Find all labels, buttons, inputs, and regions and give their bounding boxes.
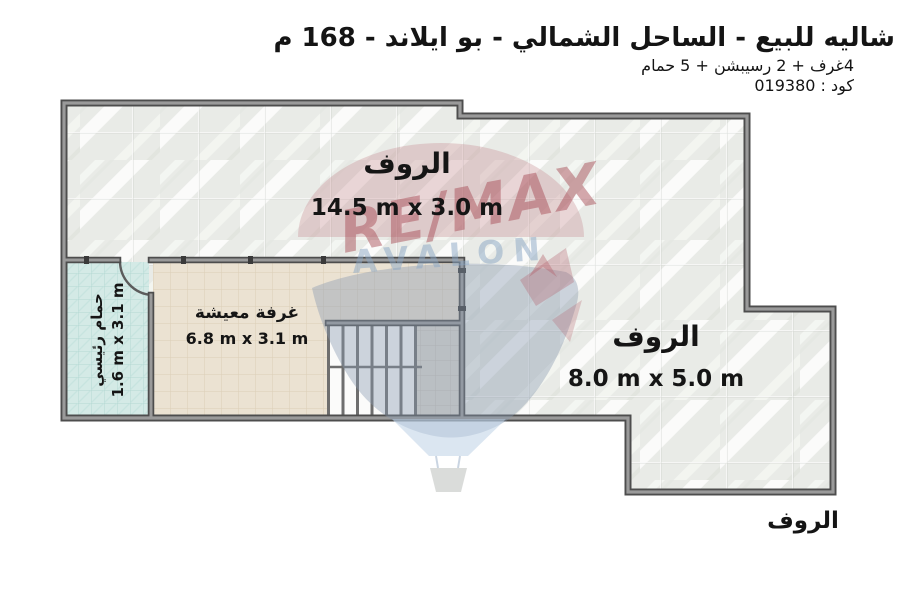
living-room-name: غرفة معيشة bbox=[145, 303, 349, 323]
roof-top-name: الروف bbox=[307, 147, 507, 181]
roof-right-dims: 8.0 m x 5.0 m bbox=[546, 367, 766, 392]
roof-right-label: الروف 8.0 m x 5.0 m bbox=[546, 320, 766, 392]
roof-top-dims: 14.5 m x 3.0 m bbox=[307, 196, 507, 221]
balloon-cone bbox=[392, 419, 506, 456]
living-room-dims: 6.8 m x 3.1 m bbox=[145, 330, 349, 348]
living-room-label: غرفة معيشة 6.8 m x 3.1 m bbox=[145, 303, 349, 348]
balloon-basket bbox=[430, 468, 467, 492]
bathroom-name: حمام رئيسي bbox=[88, 252, 106, 428]
roof-top-label: الروف 14.5 m x 3.0 m bbox=[307, 147, 507, 221]
roof-outside-name: الروف bbox=[745, 508, 861, 536]
roof-right-name: الروف bbox=[546, 320, 766, 354]
roof-outside-label: الروف bbox=[745, 508, 861, 536]
bathroom-label: حمام رئيسي 1.6 m x 3.1 m bbox=[88, 252, 136, 428]
bathroom-dims: 1.6 m x 3.1 m bbox=[110, 252, 127, 428]
